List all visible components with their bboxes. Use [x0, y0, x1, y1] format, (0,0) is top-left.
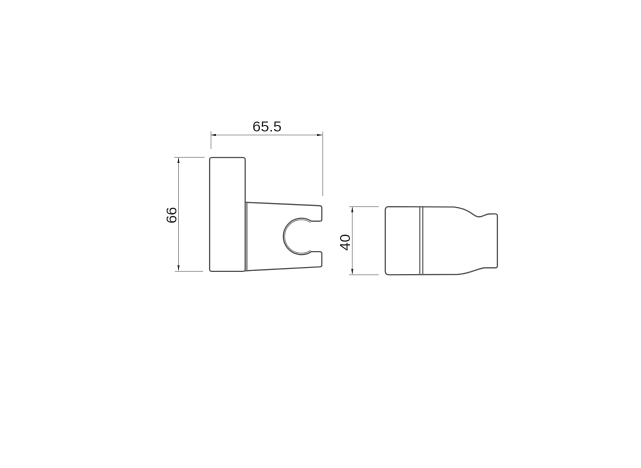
- svg-text:40: 40: [337, 234, 354, 251]
- svg-text:65.5: 65.5: [252, 119, 281, 136]
- svg-text:66: 66: [163, 207, 180, 224]
